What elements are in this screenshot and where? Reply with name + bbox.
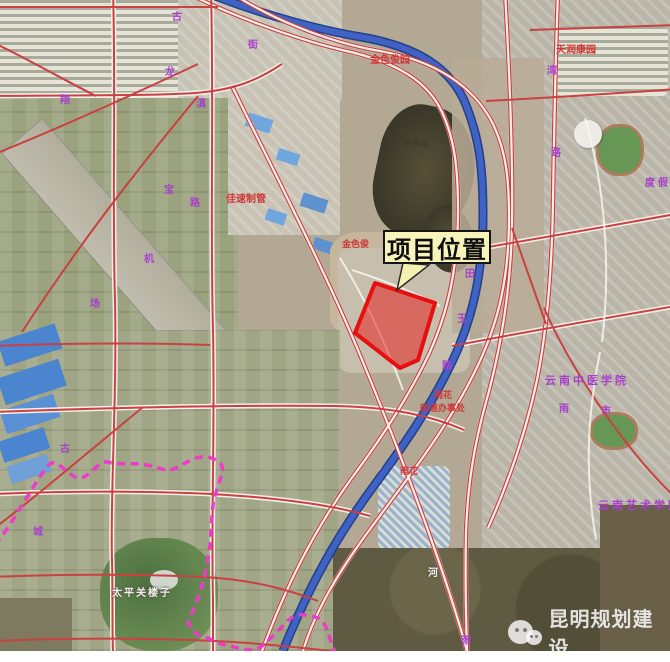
- hill-label: 牛头山: [404, 140, 428, 149]
- wechat-icon-small-bubble: [526, 630, 542, 645]
- dark-ground-southwest: [0, 598, 72, 651]
- satellite-map-figure: 金色俊园 天润康园 佳速制管 金色俊 雨花 街道办事处 雨花 云南中医学院 云南…: [0, 0, 670, 662]
- road-name-char: 场: [90, 295, 100, 310]
- road-name-char: 湾: [547, 62, 557, 77]
- pond: [150, 570, 178, 590]
- road-name-char: 古: [172, 8, 182, 23]
- road-name-char: 田: [465, 265, 475, 280]
- place-label: 雨花: [434, 391, 452, 401]
- river-label: 河: [428, 568, 438, 579]
- place-label: 佳速制管: [226, 194, 266, 205]
- satellite-map: 金色俊园 天润康园 佳速制管 金色俊 雨花 街道办事处 雨花 云南中医学院 云南…: [0, 0, 670, 651]
- watermark-text: 昆明规划建设: [548, 603, 670, 651]
- road-name-char: 滇: [196, 95, 206, 110]
- village-label: 太平关楼子: [112, 588, 172, 599]
- road-name-char: 雨: [461, 632, 471, 647]
- institution-label: 云南中医学院: [545, 375, 629, 387]
- road-name-char: 翔: [60, 91, 70, 106]
- road-name-char: 街: [248, 36, 258, 51]
- road-name-char: 城: [33, 523, 43, 538]
- institution-label: 度假: [645, 178, 670, 189]
- road-name-char: 路: [190, 194, 200, 209]
- watermark: 昆明规划建设: [508, 611, 670, 651]
- road-name-char: 路: [551, 144, 561, 159]
- stadium-track-north: [596, 124, 644, 176]
- residential-area-northeast: [556, 26, 668, 96]
- place-label: 街道办事处: [420, 404, 465, 414]
- residential-area-northwest: [0, 0, 178, 98]
- road-name-char: 龙: [165, 63, 175, 78]
- place-label: 雨花: [400, 467, 418, 477]
- road-name-char: 市: [601, 402, 611, 417]
- village-cluster: [378, 466, 450, 550]
- fields-east-mid: [452, 58, 544, 333]
- project-location-label: 项目位置: [383, 230, 491, 264]
- road-name-char: 雨: [559, 400, 569, 415]
- road-name-char: 宝: [164, 181, 174, 196]
- page-margin: [0, 651, 670, 662]
- institution-label: 云南艺术学院: [598, 500, 670, 512]
- place-label: 金色俊园: [370, 55, 410, 66]
- place-label: 天润康园: [556, 45, 596, 56]
- place-label: 金色俊: [342, 240, 369, 250]
- road-name-char: 古: [60, 440, 70, 455]
- dome-building: [574, 120, 602, 148]
- road-name-char: 机: [144, 250, 154, 265]
- road-name-char: 路: [442, 357, 452, 372]
- road-name-char: 玉: [457, 310, 467, 325]
- stadium-track-mid: [590, 412, 638, 450]
